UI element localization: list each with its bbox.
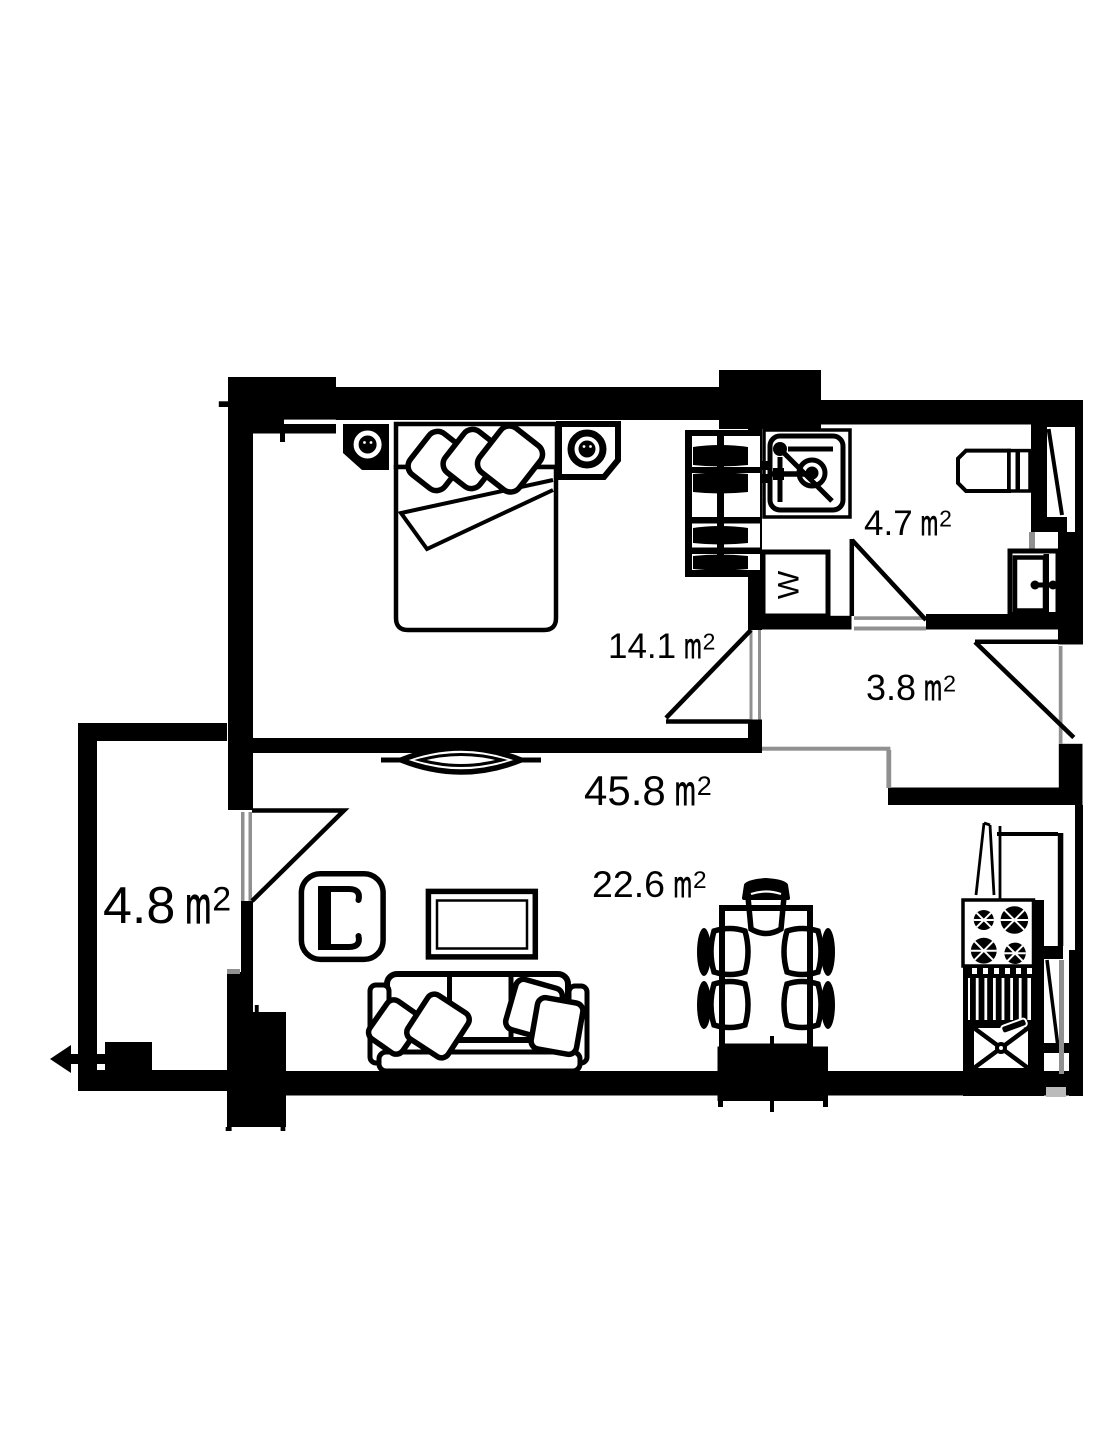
svg-text:22.6m2: 22.6m2 [592, 863, 707, 905]
svg-text:14.1m2: 14.1m2 [608, 627, 715, 666]
svg-text:45.8m2: 45.8m2 [584, 767, 712, 814]
svg-text:W: W [773, 570, 806, 599]
